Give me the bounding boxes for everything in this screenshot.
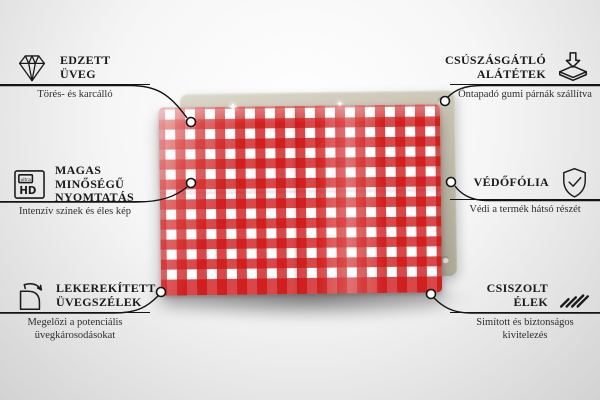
product-infographic: ✦ ✦ EDZETT ÜVEG Törés- és karcálló xyxy=(0,0,600,400)
callout-title: LEKEREKÍTETT ÜVEGSZÉLEK xyxy=(56,282,156,309)
callout-title-line: ÉLEK xyxy=(487,296,548,310)
callout-subtitle: Megelőzi a potenciális üvegkárosodásokat xyxy=(0,317,150,342)
callout-title-line: VÉDŐFÓLIA xyxy=(474,176,549,190)
callout-polished-edges: CSISZOLT ÉLEK Simított és biztonságos ki… xyxy=(450,279,600,342)
callout-title: EDZETT ÜVEG xyxy=(60,54,111,81)
callout-subtitle: Törés- és karcálló xyxy=(0,89,150,102)
callout-header: EDZETT ÜVEG xyxy=(0,51,150,85)
ultra-hd-icon-text-bottom: HD xyxy=(19,186,36,197)
callout-title-line: LEKEREKÍTETT xyxy=(56,282,156,296)
callout-header: VÉDŐFÓLIA xyxy=(450,166,600,200)
callout-anti-slip-pads: CSÚSZÁSGÁTLÓ ALÁTÉTEK Öntapadó gumi párn… xyxy=(450,51,600,102)
callout-subtitle: Intenzív színek és éles kép xyxy=(0,206,150,219)
callout-title-line: CSISZOLT xyxy=(487,282,548,296)
callout-header: LEKEREKÍTETT ÜVEGSZÉLEK xyxy=(0,279,150,313)
callout-title-line: ÜVEG xyxy=(60,68,111,82)
mounting-hole xyxy=(438,97,445,104)
callout-subtitle: Védi a termék hátsó részét xyxy=(450,204,600,217)
rounded-corner-icon xyxy=(13,279,47,313)
callout-title-line: EDZETT xyxy=(60,54,111,68)
gingham-glass-board xyxy=(159,104,442,295)
callout-title-line: MAGAS MINŐSÉGŰ xyxy=(55,164,150,191)
callout-subtitle: Simított és biztonságos kivitelezés xyxy=(450,317,600,342)
mounting-hole xyxy=(442,256,449,263)
callout-high-quality-print: ultra HD MAGAS MINŐSÉGŰ NYOMTATÁS Intenz… xyxy=(0,168,150,219)
callout-header: CSISZOLT ÉLEK xyxy=(450,279,600,313)
callout-tempered-glass: EDZETT ÜVEG Törés- és karcálló xyxy=(0,51,150,102)
sparkle-icon: ✦ xyxy=(336,100,344,110)
polished-edges-icon xyxy=(557,279,591,312)
callout-rounded-glass-edges: LEKEREKÍTETT ÜVEGSZÉLEK Megelőzi a poten… xyxy=(0,279,150,342)
callout-protective-film: VÉDŐFÓLIA Védi a termék hátsó részét xyxy=(450,166,600,217)
callout-title: VÉDŐFÓLIA xyxy=(474,176,549,190)
callout-title: MAGAS MINŐSÉGŰ NYOMTATÁS xyxy=(55,164,150,205)
callout-header: ultra HD MAGAS MINŐSÉGŰ NYOMTATÁS xyxy=(0,168,150,202)
callout-subtitle: Öntapadó gumi párnák szállítva xyxy=(450,89,600,102)
ultra-hd-icon-text-top: ultra xyxy=(20,177,31,183)
callout-title-line: CSÚSZÁSGÁTLÓ xyxy=(445,54,546,68)
callout-title: CSÚSZÁSGÁTLÓ ALÁTÉTEK xyxy=(445,54,546,81)
anti-slip-pads-icon xyxy=(555,50,591,86)
callout-header: CSÚSZÁSGÁTLÓ ALÁTÉTEK xyxy=(450,51,600,85)
callout-title: CSISZOLT ÉLEK xyxy=(487,282,548,309)
sparkle-icon: ✦ xyxy=(228,100,238,114)
callout-title-line: ÜVEGSZÉLEK xyxy=(56,296,156,310)
diamond-icon xyxy=(13,51,51,84)
ultra-hd-icon: ultra HD xyxy=(13,169,46,200)
shield-check-icon xyxy=(558,166,591,200)
callout-title-line: NYOMTATÁS xyxy=(55,191,150,205)
callout-title-line: ALÁTÉTEK xyxy=(445,68,546,82)
